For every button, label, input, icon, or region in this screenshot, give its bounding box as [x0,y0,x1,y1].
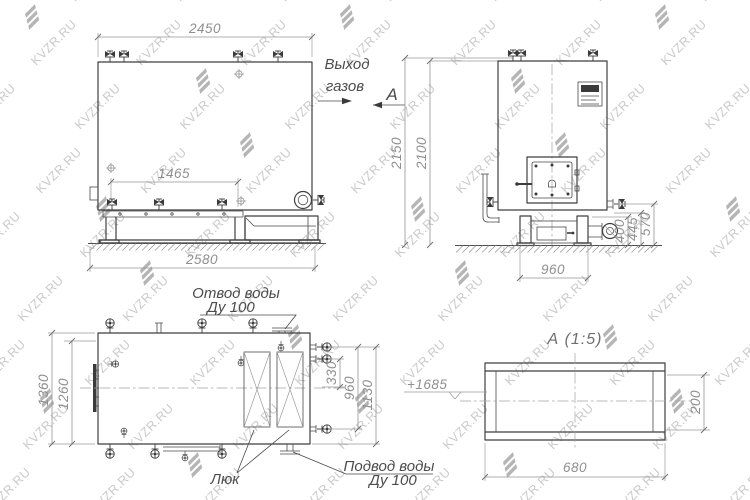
valve-icon [317,343,331,351]
valve-icon [107,199,117,210]
dim-level-3: 570 [638,212,653,236]
base-box [245,216,318,240]
position-mark-icon [236,196,246,206]
leader-line [200,315,296,329]
dim-section-width: 680 [563,460,587,475]
rail-bolt-holes [119,213,225,215]
valve-icon [154,199,164,210]
boiler-body-side [498,61,607,210]
drawing-canvas: KVZR.RUKVZR.RUKVZR.RUKVZR.RUKVZR.RUKVZR.… [0,0,750,500]
gas-outlet-annotation: Выход газов А [318,56,405,108]
valve-icon [106,444,114,458]
technical-drawing: 2450 1465 [0,0,750,500]
dim-width-top: 2450 [188,21,221,36]
front-view: 2450 1465 [87,21,326,272]
base-side [517,216,618,246]
nameplate [578,82,602,106]
section-view: А (1:5) +1685 200 680 [404,331,710,481]
dim-base-depth: 960 [541,262,565,277]
water-outlet-flange [272,328,292,333]
valve-icon [238,356,244,366]
hatch-opening [277,352,303,427]
hatch-opening [244,352,270,427]
dim-valves-span: 1465 [158,166,190,181]
valve-icon [217,199,227,210]
valve-icon [121,428,127,438]
section-title: А (1:5) [546,331,602,348]
valve-icon [487,197,498,207]
water-inlet-label: Ду 100 [367,472,417,489]
dim-width-bottom: 2580 [185,252,218,267]
plan-view: 1360 1260 [36,285,434,489]
furnace-door [515,157,579,203]
water-inlet-flange [280,444,300,454]
valve-icon [278,341,284,351]
dim-section-height: 200 [688,390,703,415]
dim-depth-overall: 1360 [36,374,51,406]
level-mark-icon [449,392,461,399]
dim-height-overall: 2150 [389,137,404,170]
water-outlet-label: Ду 100 [205,299,255,316]
valve-icon [151,444,159,458]
section-letter: А [385,85,397,104]
valve-icon [313,195,324,205]
dim-nozzle-spacing: 330 [324,361,339,385]
position-mark-icon [106,163,116,173]
elevation-mark: +1685 [407,377,447,392]
dim-depth-body: 1260 [56,378,71,410]
ground-hatch [456,246,658,253]
hatch-label: Люк [210,471,241,488]
valve-icon [105,51,115,62]
valve-icon [108,361,119,367]
valve-icon [198,319,206,333]
valve-icon [588,50,598,61]
valve-icon [273,51,283,62]
valve-icon [249,319,257,333]
valve-icon [119,51,129,62]
dim-nozzle-span: 960 [342,376,357,400]
leader-line [237,430,289,473]
side-view: 2150 2100 [389,50,662,282]
position-mark-icon [234,69,244,79]
valve-icon [233,51,243,62]
boiler-body-front [98,62,312,210]
valve-icon [182,451,188,461]
dim-overall-span: 1130 [360,379,375,410]
ash-door [537,227,566,240]
valve-icon [106,319,114,333]
arrow-right-icon [342,98,352,104]
gas-outlet-label: газов [326,78,364,95]
dim-height-body: 2100 [414,137,429,170]
gas-outlet-label: Выход [324,56,369,73]
valve-icon [317,425,331,433]
arrow-left-icon [373,102,382,108]
burner-flange-icon [295,192,312,209]
ground-hatch [90,244,325,251]
side-bracket [90,187,98,200]
